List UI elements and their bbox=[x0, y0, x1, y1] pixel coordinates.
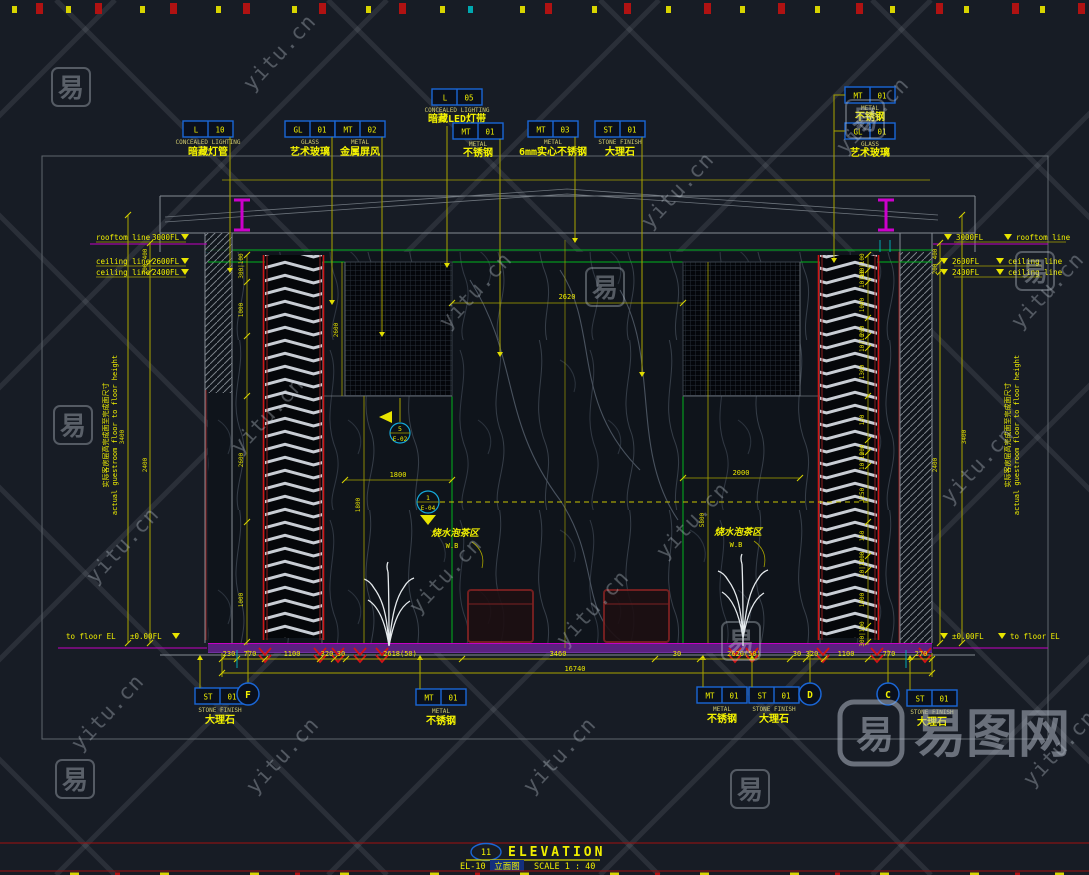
callout-label: 暗藏灯管 bbox=[188, 145, 228, 158]
chevron-column-left bbox=[265, 255, 322, 638]
dim-value: 2600 bbox=[333, 322, 340, 337]
callout-tag: MT bbox=[461, 128, 471, 137]
callout-num: 01 bbox=[729, 692, 738, 701]
level-value: 3000FL bbox=[956, 233, 984, 242]
callout-num: 01 bbox=[227, 693, 236, 702]
dim-value: 1800 bbox=[355, 497, 362, 512]
dim-value: 320 bbox=[321, 650, 334, 658]
dim-value: 30 bbox=[337, 650, 345, 658]
watermark-logo: 易 易图网 bbox=[840, 702, 1070, 765]
callout-label: 不锈钢 bbox=[707, 712, 737, 725]
grid-bubble-letter: F bbox=[245, 690, 251, 701]
detail-marker-number: 5 bbox=[398, 425, 402, 433]
dim-value: 2620 bbox=[559, 293, 576, 301]
dim-value: 400 bbox=[932, 248, 939, 259]
callout-label: 艺术玻璃 bbox=[290, 145, 330, 158]
callout-type: METAL bbox=[544, 139, 562, 146]
callout-num: 01 bbox=[781, 692, 790, 701]
dim-value: 200 bbox=[142, 263, 149, 274]
detail-marker-sheet: E-04 bbox=[421, 505, 436, 512]
callout-num: 05 bbox=[464, 94, 473, 103]
dim-value: 770 bbox=[883, 650, 896, 658]
dim-chain-bottom: 230 770 1100 320 30 2618(50) 3460 30 262… bbox=[219, 650, 935, 677]
watermark-char: 易 bbox=[852, 106, 878, 136]
callout-num: 01 bbox=[448, 694, 457, 703]
callout-type: METAL bbox=[432, 708, 450, 715]
callout-tag: L bbox=[194, 126, 199, 135]
zone-code: W.B bbox=[730, 541, 743, 549]
title-bubble-number: 11 bbox=[481, 848, 491, 858]
callout-tag: MT bbox=[424, 694, 434, 703]
wall-section-hatch-left bbox=[205, 233, 232, 393]
dim-value: 1300 bbox=[859, 364, 866, 379]
watermark-site: yitu.cn bbox=[81, 502, 164, 588]
callout-type: METAL bbox=[351, 139, 369, 146]
callout-tag: MT bbox=[705, 692, 715, 701]
dim-value: 320 bbox=[806, 650, 819, 658]
material-callout-bottom-1: MT 01 METAL 不锈钢 bbox=[416, 655, 466, 727]
callout-tag: ST bbox=[915, 695, 925, 704]
callout-type: STONE FINISH bbox=[598, 139, 642, 146]
dim-value: 10|10 bbox=[859, 559, 866, 577]
dim-value: 1000 bbox=[859, 592, 866, 607]
callout-label: 不锈钢 bbox=[426, 714, 456, 727]
callout-label: 金属屏风 bbox=[339, 145, 380, 158]
dim-value: 2400 bbox=[142, 457, 149, 472]
watermark-site: yitu.cn bbox=[66, 669, 149, 755]
watermark-char: 易 bbox=[737, 776, 763, 806]
dim-value: 230 bbox=[223, 650, 236, 658]
steel-beam-icon bbox=[878, 200, 894, 230]
callout-tag: MT bbox=[343, 126, 353, 135]
dim-value: 1800 bbox=[390, 471, 407, 479]
dim-value: 1100 bbox=[838, 650, 855, 658]
callout-num: 03 bbox=[560, 126, 569, 135]
dim-value: 3400 bbox=[119, 429, 126, 444]
zone-name: 烧水泡茶区 bbox=[714, 526, 763, 538]
callout-tag: L bbox=[443, 94, 448, 103]
dim-value: 1000 bbox=[238, 592, 245, 607]
level-value: 2600FL bbox=[152, 257, 180, 266]
watermark-char: 易 bbox=[62, 766, 88, 796]
dim-value: 1100 bbox=[284, 650, 301, 658]
dim-value: 3400 bbox=[961, 429, 968, 444]
detail-marker-number: 1 bbox=[426, 494, 430, 502]
callout-label: 大理石 bbox=[205, 713, 235, 726]
callout-type: METAL bbox=[713, 706, 731, 713]
callout-num: 01 bbox=[485, 128, 494, 137]
dim-value: 1000 bbox=[238, 302, 245, 317]
grid-bubble-letter: D bbox=[807, 690, 813, 701]
watermark-site: yitu.cn bbox=[241, 712, 324, 798]
dim-value: 1250 bbox=[859, 487, 866, 502]
watermark-site: yitu.cn bbox=[238, 9, 321, 95]
callout-num: 10 bbox=[215, 126, 225, 135]
level-label: to floor EL bbox=[1010, 632, 1060, 641]
watermark-site: yitu.cn bbox=[636, 147, 719, 233]
watermark-logo-text: 易图网 bbox=[914, 705, 1070, 765]
callout-label: 大理石 bbox=[759, 712, 789, 725]
dim-value: 3460 bbox=[550, 650, 567, 658]
watermark-char: 易 bbox=[592, 274, 618, 304]
level-value: ±0.00FL bbox=[952, 632, 984, 641]
grid-bubble-letter: C bbox=[885, 690, 891, 701]
watermark-logo-glyph: 易 bbox=[856, 713, 894, 757]
watermark-char: 易 bbox=[728, 628, 754, 658]
level-value: ±0.00FL bbox=[130, 632, 162, 641]
dim-value: 2400 bbox=[932, 457, 939, 472]
level-value: 3000FL bbox=[152, 233, 180, 242]
dim-value: 400 bbox=[142, 248, 149, 259]
level-value: 2400FL bbox=[952, 268, 980, 277]
dim-value: 1000 bbox=[859, 297, 866, 312]
dim-value: 270 bbox=[915, 650, 928, 658]
callout-label: 不锈钢 bbox=[463, 146, 493, 159]
dim-value: 30 bbox=[673, 650, 681, 658]
dim-value: 150 bbox=[859, 530, 866, 541]
callout-label: 大理石 bbox=[605, 145, 635, 158]
cad-drawing-canvas: L 10 CONCEALED LIGHTING 暗藏灯管 GL 01 GLASS… bbox=[0, 0, 1089, 875]
wall-section-hatch-right bbox=[900, 252, 932, 643]
side-note-cn: 实际客房层高完成面至完成面尺寸 bbox=[101, 383, 110, 488]
callout-tag: ST bbox=[757, 692, 767, 701]
watermark-char: 易 bbox=[58, 74, 84, 104]
callout-tag: GL bbox=[293, 126, 303, 135]
level-label: rooftom line bbox=[96, 233, 151, 242]
metal-screen-panel-left bbox=[345, 262, 452, 396]
dim-value: 300|100 bbox=[238, 253, 245, 279]
dim-value: 150 bbox=[859, 414, 866, 425]
level-value: 2600FL bbox=[952, 257, 980, 266]
side-note-left: 实际客房层高完成面至完成面尺寸 actual guestroom floor t… bbox=[101, 355, 119, 515]
furniture-bench-left bbox=[468, 590, 533, 642]
material-callout-bottom-3: ST 01 STONE FINISH 大理石 bbox=[749, 655, 799, 725]
callout-tag: MT bbox=[536, 126, 546, 135]
dim-value: 2000 bbox=[733, 469, 750, 477]
callout-tag: ST bbox=[203, 693, 213, 702]
side-note-en: actual guestroom floor to floor height bbox=[111, 355, 119, 515]
dim-value: 10|10 bbox=[859, 270, 866, 288]
callout-num: 01 bbox=[627, 126, 636, 135]
level-value: 2400FL bbox=[152, 268, 180, 277]
detail-marker-sheet: E-02 bbox=[393, 436, 408, 443]
dim-value: 30 bbox=[793, 650, 801, 658]
callout-num: 01 bbox=[317, 126, 326, 135]
dim-total: 16740 bbox=[564, 665, 585, 673]
callout-num: 02 bbox=[367, 126, 376, 135]
callout-type: GLASS bbox=[301, 139, 319, 146]
callout-type: STONE FINISH bbox=[752, 706, 796, 713]
dim-value: 10|10 bbox=[859, 452, 866, 470]
callout-num: 01 bbox=[939, 695, 948, 704]
callout-type: CONCEALED LIGHTING bbox=[175, 139, 240, 146]
callout-type: CONCEALED LIGHTING bbox=[424, 107, 489, 114]
level-label: rooftom line bbox=[1016, 233, 1071, 242]
dim-value: 770 bbox=[244, 650, 257, 658]
callout-type: METAL bbox=[469, 141, 487, 148]
dim-value: 300|100 bbox=[859, 621, 866, 647]
level-label: to floor EL bbox=[66, 632, 116, 641]
dim-value: 2618(50) bbox=[383, 650, 417, 658]
dim-value: 200 bbox=[932, 263, 939, 274]
drawing-name-cn: 立面图 bbox=[494, 861, 520, 872]
watermark-site: yitu.cn bbox=[518, 712, 601, 798]
watermark-char: 易 bbox=[60, 412, 86, 442]
callout-type: STONE FINISH bbox=[198, 707, 242, 714]
steel-beam-icon bbox=[234, 200, 250, 230]
chevron-column-right bbox=[820, 255, 877, 638]
watermark-char: 易 bbox=[1022, 258, 1048, 288]
elevation-title: ELEVATION bbox=[508, 845, 605, 860]
metal-screen-panel-right bbox=[683, 262, 800, 396]
dim-value: 10|10 bbox=[859, 334, 866, 352]
callout-tag: ST bbox=[603, 126, 613, 135]
callout-label: 6mm实心不锈钢 bbox=[519, 145, 587, 158]
